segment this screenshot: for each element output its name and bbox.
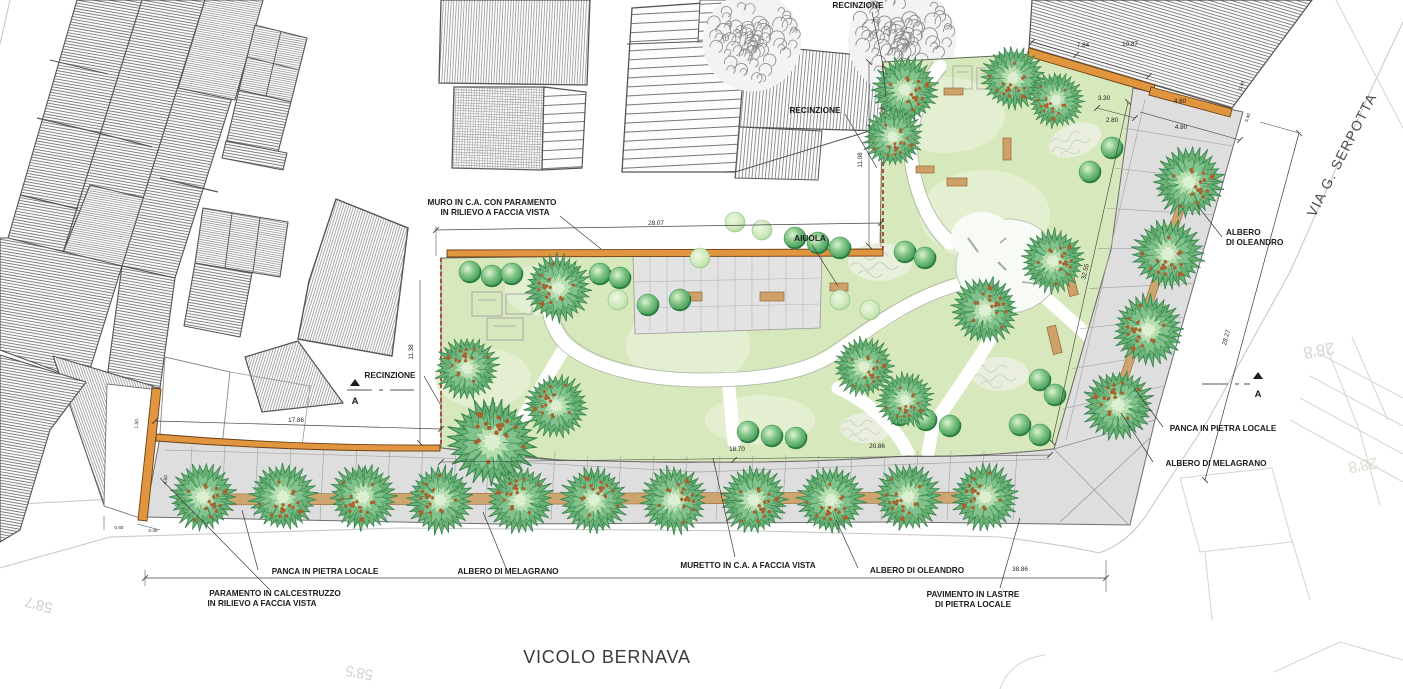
svg-text:11.38: 11.38 (408, 344, 415, 360)
svg-text:DI PIETRA LOCALE: DI PIETRA LOCALE (935, 600, 1012, 609)
svg-text:17.86: 17.86 (288, 417, 304, 424)
svg-text:38.86: 38.86 (1012, 566, 1028, 573)
svg-text:4.80: 4.80 (1174, 98, 1187, 105)
svg-text:RECINZIONE: RECINZIONE (832, 0, 884, 10)
svg-text:A: A (1255, 389, 1262, 400)
svg-text:DI OLEANDRO: DI OLEANDRO (1226, 238, 1284, 247)
svg-text:AIUOLA: AIUOLA (794, 233, 826, 243)
svg-text:PARAMENTO IN CALCESTRUZZO: PARAMENTO IN CALCESTRUZZO (209, 589, 341, 598)
svg-text:7.84: 7.84 (1077, 42, 1090, 49)
svg-text:ALBERO DI MELAGRANO: ALBERO DI MELAGRANO (458, 567, 560, 576)
svg-text:10.87: 10.87 (1122, 41, 1138, 48)
svg-text:PANCA IN PIETRA LOCALE: PANCA IN PIETRA LOCALE (272, 567, 379, 576)
svg-text:ALBERO DI MELAGRANO: ALBERO DI MELAGRANO (1166, 459, 1268, 468)
svg-text:MURETTO IN C.A. A FACCIA VIST: MURETTO IN C.A. A FACCIA VISTA (680, 561, 815, 570)
svg-text:ALBERO DI OLEANDRO: ALBERO DI OLEANDRO (870, 566, 965, 575)
svg-text:RECINZIONE: RECINZIONE (789, 105, 841, 115)
svg-text:PAVIMENTO IN LASTRE: PAVIMENTO IN LASTRE (927, 590, 1020, 599)
svg-text:2.80: 2.80 (1106, 117, 1119, 124)
svg-text:1.50: 1.50 (134, 419, 141, 429)
svg-text:11.08: 11.08 (857, 152, 864, 168)
svg-text:0.40: 0.40 (149, 528, 158, 533)
svg-text:VICOLO BERNAVA: VICOLO BERNAVA (523, 647, 691, 667)
svg-text:4.80: 4.80 (1175, 124, 1188, 131)
svg-text:20.86: 20.86 (869, 443, 885, 450)
svg-text:A: A (352, 396, 359, 407)
svg-text:IN RILIEVO A FACCIA VISTA: IN RILIEVO A FACCIA VISTA (440, 208, 549, 217)
svg-text:18.70: 18.70 (729, 446, 745, 453)
svg-text:RECINZIONE: RECINZIONE (364, 370, 416, 380)
svg-text:0.60: 0.60 (115, 525, 124, 530)
svg-text:MURO IN C.A. CON PARAMENTO: MURO IN C.A. CON PARAMENTO (428, 198, 558, 207)
svg-text:IN RILIEVO A FACCIA VISTA: IN RILIEVO A FACCIA VISTA (207, 599, 316, 608)
svg-text:28.07: 28.07 (648, 220, 664, 227)
svg-text:ALBERO: ALBERO (1226, 228, 1261, 237)
svg-text:4.50: 4.50 (163, 475, 170, 485)
svg-text:PANCA IN PIETRA LOCALE: PANCA IN PIETRA LOCALE (1170, 424, 1277, 433)
svg-text:3.30: 3.30 (1098, 95, 1111, 102)
